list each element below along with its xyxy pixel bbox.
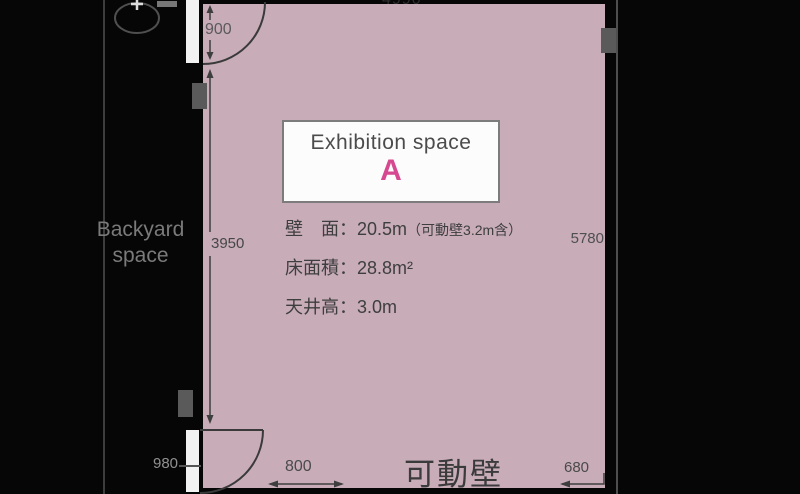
spec-wall-note: （可動壁3.2m含） <box>407 222 522 238</box>
room-name-label: Exhibition space <box>284 131 498 155</box>
floor-plan: 4990 900 3950 5780 980 800 680 Backyard … <box>0 0 800 494</box>
dim-label-top-door: 900 <box>205 21 232 39</box>
faucet-icon <box>131 0 143 10</box>
spec-wall-main: 壁 面：20.5m <box>285 219 407 239</box>
room-letter: A <box>284 156 498 186</box>
room-title-box: Exhibition space A <box>282 120 500 203</box>
spec-ceiling-height: 天井高：3.0m <box>285 293 522 319</box>
room-specs: 壁 面：20.5m（可動壁3.2m含） 床面積：28.8m² 天井高：3.0m <box>285 215 522 332</box>
dim-label-bottom-door: 980 <box>153 455 178 472</box>
spec-wall-length: 壁 面：20.5m（可動壁3.2m含） <box>285 215 522 241</box>
dim-line-800 <box>268 481 344 488</box>
dim-label-right-height: 5780 <box>568 230 604 247</box>
dim-label-bottom-right: 680 <box>564 459 589 476</box>
counter-fixture <box>157 1 177 7</box>
movable-wall-label: 可動壁 <box>404 449 503 494</box>
dim-label-left-height: 3950 <box>211 235 244 252</box>
backyard-label-line1: Backyard <box>83 217 198 243</box>
backyard-space-label: Backyard space <box>83 217 198 268</box>
dim-label-top-width: 4990 <box>382 0 422 9</box>
bottom-door-arc <box>200 430 263 493</box>
spec-floor-area: 床面積：28.8m² <box>285 254 522 280</box>
backyard-label-line2: space <box>83 243 198 269</box>
dim-label-bottom-left: 800 <box>285 458 312 476</box>
